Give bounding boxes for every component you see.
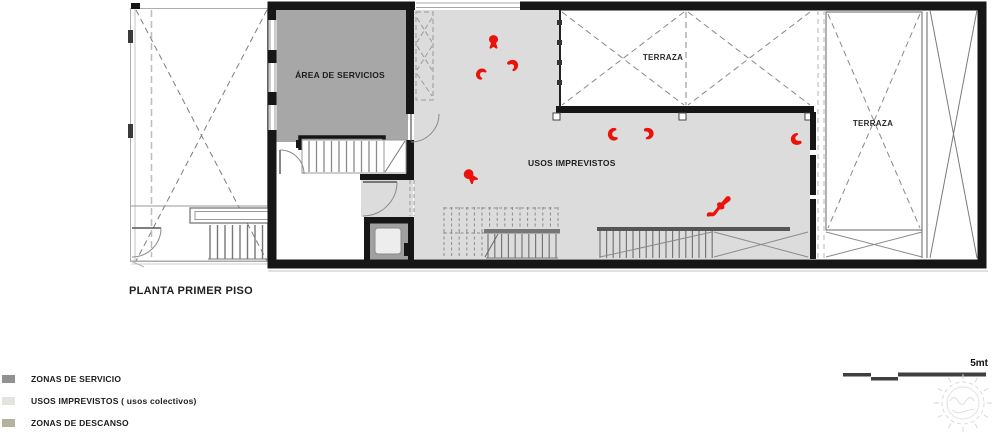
flexible-uses-label: USOS IMPREVISTOS: [528, 158, 614, 168]
terrace-right-label: TERRAZA: [848, 119, 898, 128]
legend-row-service: ZONAS DE SERVICIO: [2, 374, 197, 396]
watermark-stamp: [934, 374, 992, 432]
legend-swatch-flexible: [2, 397, 15, 405]
patio-lot: [128, 3, 273, 267]
scale-bar: [843, 373, 986, 381]
legend-label-service: ZONAS DE SERVICIO: [31, 374, 121, 384]
page-title: PLANTA PRIMER PISO: [129, 285, 253, 297]
legend-label-flexible: USOS IMPREVISTOS ( usos colectivos): [31, 396, 197, 406]
legend: ZONAS DE SERVICIO USOS IMPREVISTOS ( uso…: [2, 374, 197, 436]
terrace-top-label: TERRAZA: [638, 53, 688, 62]
floor-plan-page: ÁREA DE SERVICIOS TERRAZA TERRAZA USOS I…: [0, 0, 1000, 436]
legend-label-rest: ZONAS DE DESCANSO: [31, 418, 129, 428]
service-area-label: ÁREA DE SERVICIOS: [294, 70, 386, 80]
scale-bar-label: 5mt: [952, 358, 988, 369]
floor-plan-drawing: [0, 0, 1000, 436]
elevator-shaft: [364, 217, 414, 260]
service-area-room: [269, 8, 440, 180]
legend-row-rest: ZONAS DE DESCANSO: [2, 418, 197, 436]
service-stair: [300, 137, 406, 173]
legend-row-flexible: USOS IMPREVISTOS ( usos colectivos): [2, 396, 197, 418]
legend-swatch-service: [2, 375, 15, 383]
legend-swatch-rest: [2, 419, 15, 427]
